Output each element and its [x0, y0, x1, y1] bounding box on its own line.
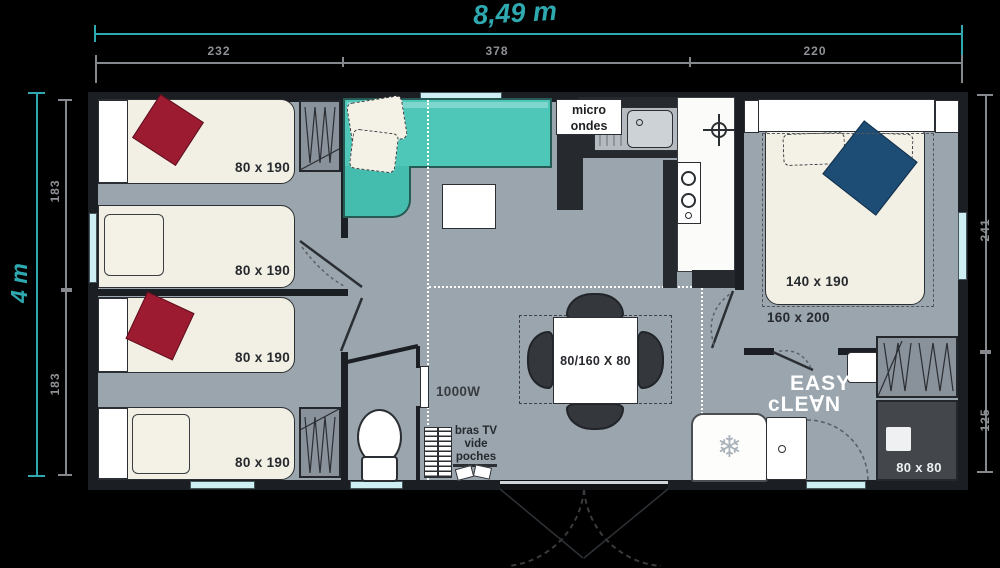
- left-sub-tick-1: [58, 99, 72, 101]
- window-bottom-2: [350, 481, 403, 489]
- wall-bathroom-a: [744, 348, 774, 355]
- easy-clean-logo: EASY cLE∀N: [760, 372, 860, 420]
- sofa-pillow-2: [349, 128, 400, 173]
- master-nightstand-right: [935, 100, 959, 133]
- hob-knob-icon: [685, 212, 692, 219]
- left-dim-tick-bottom: [28, 475, 45, 477]
- sink-basin: [627, 110, 673, 148]
- burner-icon-2: [681, 193, 696, 208]
- kitchen-column-cap: [692, 270, 735, 288]
- top-sub-dimension-line: [95, 62, 963, 64]
- dining-table-size-label: 80/160 X 80: [560, 354, 631, 368]
- wall-left-bedrooms-bottom: [341, 352, 348, 480]
- faucet-icon: [636, 119, 643, 126]
- dining-table: 80/160 X 80: [553, 317, 638, 404]
- shower-size-label: 80 x 80: [884, 460, 954, 475]
- tv-label-line3: poches: [446, 451, 506, 464]
- left-sub-tick-2: [61, 288, 72, 292]
- bed-1-headboard: [98, 100, 128, 183]
- microwave-label-line1: micro: [557, 103, 621, 119]
- dim-segment-241: 241: [978, 200, 992, 260]
- snowflake-icon: ❄: [717, 430, 742, 465]
- left-sub-tick-3: [58, 474, 72, 476]
- burner-icon-1: [681, 171, 696, 186]
- dim-segment-125: 125: [978, 390, 992, 450]
- coffee-table: [442, 184, 496, 229]
- entrance-threshold: [500, 481, 668, 484]
- sub-tick-3: [689, 57, 691, 67]
- master-nightstand-left: [744, 100, 759, 133]
- dim-segment-183-top: 183: [48, 161, 62, 221]
- entrance-door-arc-right: [584, 490, 661, 566]
- kitchen-counter-return: [557, 135, 583, 210]
- master-zone-size-label: 160 x 200: [767, 310, 847, 325]
- total-width-label: 8,49 m: [424, 0, 605, 35]
- window-left-wall: [89, 213, 97, 283]
- kitchen-column-edge: [663, 160, 677, 288]
- radiator-divider: [437, 427, 439, 478]
- heater-label: 1000W: [436, 384, 496, 399]
- microwave-label-box: micro ondes: [556, 99, 622, 135]
- right-sub-tick-1: [977, 94, 993, 96]
- toilet-tank: [361, 456, 398, 482]
- entrance-door-arc-left: [508, 490, 584, 566]
- bed-3-headboard: [98, 298, 128, 372]
- wardrobe-bedroom-top: [299, 100, 341, 172]
- right-sub-tick-2: [980, 350, 991, 354]
- window-bottom-1: [190, 481, 255, 489]
- shower-tray: [886, 427, 911, 451]
- bed-2-pillow: [104, 214, 164, 276]
- bed-4-pillow: [132, 414, 190, 474]
- floorplan-canvas: 8,49 m 232 378 220 4 m 183 183 241 125 8…: [0, 0, 1000, 568]
- dim-segment-378: 378: [427, 44, 567, 58]
- dim-segment-220: 220: [745, 44, 885, 58]
- sofa-chaise: [343, 166, 411, 218]
- bed-3-size-label: 80 x 190: [210, 350, 290, 365]
- tv-label-line2: vide: [446, 438, 506, 451]
- right-sub-tick-3: [977, 471, 993, 473]
- left-dimension-line: [36, 93, 38, 477]
- dim-segment-232: 232: [149, 44, 289, 58]
- microwave-label-line2: ondes: [557, 119, 621, 135]
- sub-tick-1: [95, 55, 97, 83]
- bed-4-size-label: 80 x 190: [210, 455, 290, 470]
- bed-1-size-label: 80 x 190: [210, 160, 290, 175]
- fridge: ❄: [691, 413, 768, 482]
- master-bed-size-label: 140 x 190: [786, 274, 866, 289]
- master-headboard: [758, 99, 935, 132]
- bed-2-size-label: 80 x 190: [210, 263, 290, 278]
- wall-master-bedroom-left: [735, 97, 744, 290]
- sub-tick-2: [342, 57, 344, 67]
- zone-divider-vertical-2: [701, 288, 703, 414]
- top-dim-tick-left: [94, 25, 96, 42]
- dim-segment-183-bottom: 183: [48, 354, 62, 414]
- window-right-wall: [958, 212, 967, 280]
- wall-between-left-bedrooms: [88, 289, 348, 296]
- wardrobe-bathroom: [876, 336, 958, 398]
- entrance-door-leaf-left: [500, 489, 583, 558]
- wc-door: [420, 366, 429, 408]
- sub-tick-4: [961, 55, 963, 83]
- left-dim-tick-top: [28, 92, 45, 94]
- zone-divider-vertical-1: [427, 100, 429, 480]
- bathroom-door-knob: [778, 445, 786, 453]
- window-bottom-3: [806, 481, 866, 489]
- entrance-door-leaf-right: [584, 489, 668, 558]
- wardrobe-bedroom-bottom: [299, 407, 341, 478]
- zone-divider-horizontal: [429, 286, 692, 288]
- top-dimension-line: [95, 33, 963, 35]
- bathroom-door: [766, 417, 807, 480]
- tv-bracket-label: bras TV vide poches: [446, 425, 506, 465]
- easy-clean-line2: cLE∀N: [768, 392, 841, 417]
- tv-label-line1: bras TV: [446, 425, 506, 438]
- total-height-label: 4 m: [6, 248, 36, 318]
- bed-4-headboard: [98, 408, 128, 479]
